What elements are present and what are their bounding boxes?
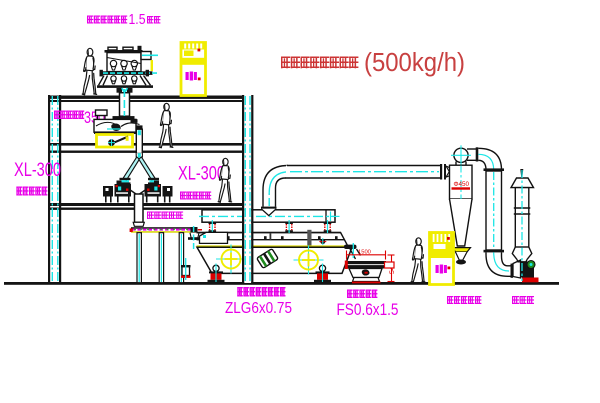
svg-text:(500kg/h): (500kg/h) <box>364 49 465 77</box>
svg-text:FS0.6x1.5: FS0.6x1.5 <box>337 300 399 319</box>
svg-text:XL-300: XL-300 <box>178 163 225 185</box>
svg-text:1.5: 1.5 <box>129 11 146 28</box>
svg-text:1500: 1500 <box>358 250 371 256</box>
svg-text:ZLG6x0.75: ZLG6x0.75 <box>225 300 292 317</box>
svg-text:Φ450: Φ450 <box>454 181 470 188</box>
svg-text:XL-300: XL-300 <box>14 159 61 181</box>
